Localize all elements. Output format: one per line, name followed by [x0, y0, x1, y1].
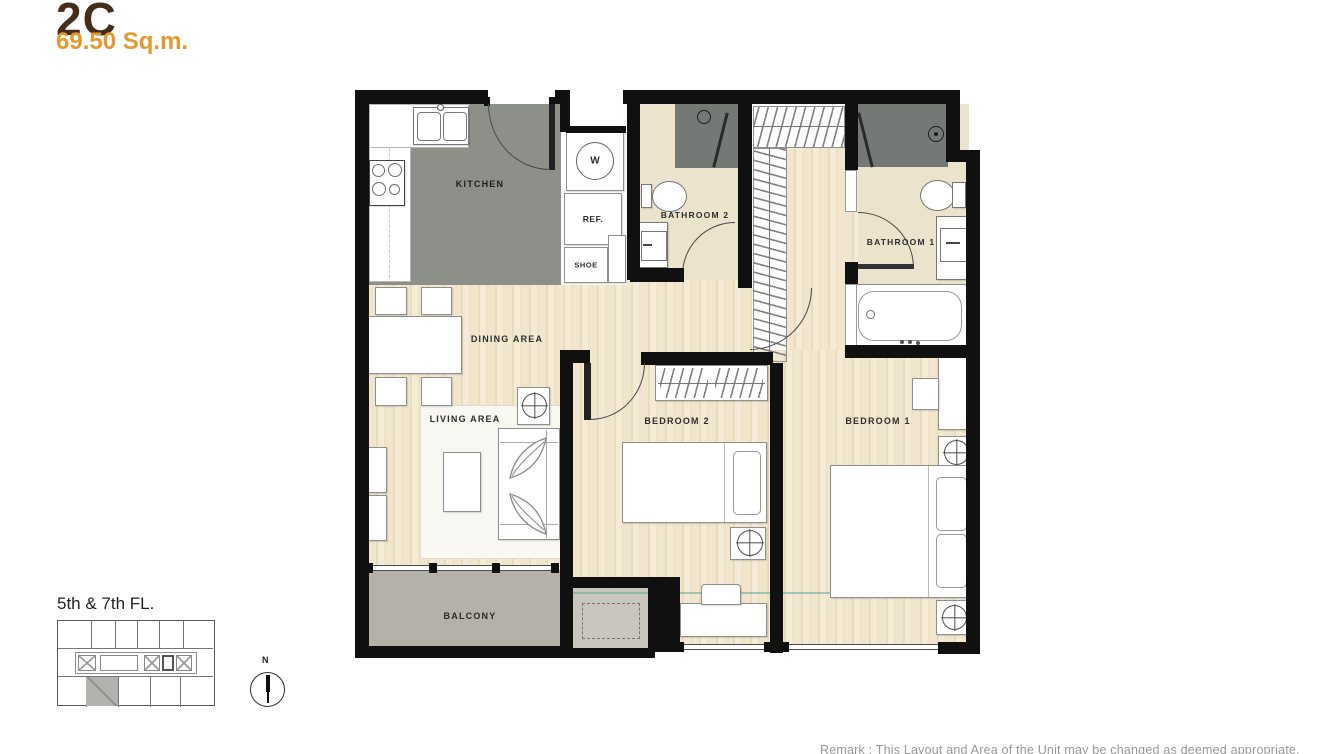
bathroom1-label: BATHROOM 1	[867, 237, 936, 247]
wall-ledge-top	[565, 577, 655, 588]
key-plan-grid-line	[58, 676, 213, 677]
exterior-notch	[570, 104, 623, 128]
compass-needle-tail	[267, 692, 269, 703]
wall-bathroom1-bedroom1	[845, 345, 980, 358]
leaf-pillow-top	[504, 436, 548, 482]
stool-bedroom1	[912, 378, 939, 410]
key-plan-core-box	[100, 655, 138, 671]
bathtub-drain	[866, 310, 875, 319]
plant-pot-living	[522, 393, 547, 418]
wall-right-main	[966, 150, 980, 652]
wall-bathroom1-left-upper	[845, 104, 858, 170]
floor-plan-page: 2C 69.50 Sq.m. W	[0, 0, 1342, 754]
dining-chair-2	[421, 287, 452, 315]
wall-bathroom1-left-stub	[845, 262, 858, 284]
desk-chair-bedroom2	[701, 584, 741, 605]
living-area-label: LIVING AREA	[430, 414, 501, 424]
leaf-pillow-bottom	[504, 490, 548, 536]
wall-bedroom2-top-main	[641, 352, 773, 365]
sliding-door-post-2	[429, 563, 437, 573]
toilet2-bowl	[652, 181, 687, 212]
coffee-table	[443, 452, 481, 512]
sink1-faucet	[946, 242, 960, 244]
sink2-faucet	[643, 244, 652, 246]
key-plan-elevator-3	[176, 655, 192, 671]
key-plan-elevator-1	[78, 655, 96, 671]
toilet1-tank	[952, 182, 966, 208]
balcony-floor	[369, 570, 560, 646]
showerhead1-dot	[934, 132, 938, 136]
wardrobe-rail	[658, 383, 765, 384]
floor-level-label: 5th & 7th FL.	[57, 594, 154, 614]
dining-chair-3	[375, 377, 407, 406]
dining-chair-1	[375, 287, 407, 315]
toilet1-bowl	[920, 180, 955, 211]
bathroom1-door-leaf	[858, 264, 914, 269]
key-plan-elevator-2	[144, 655, 160, 671]
shoe-label: SHOE	[574, 261, 597, 270]
sliding-door-post-3	[492, 563, 500, 573]
plant-pot-bedroom2	[737, 530, 763, 556]
wall-left	[355, 90, 369, 658]
bedroom2-window	[680, 644, 772, 650]
ac-condenser-unit	[582, 603, 640, 639]
closet-rack-top	[753, 106, 845, 148]
bed2-blanket-line	[724, 443, 725, 522]
showerhead2-icon	[697, 110, 711, 124]
toilet2-tank	[641, 184, 652, 208]
wall-ledge-bottom	[572, 648, 655, 658]
burner-1	[372, 164, 385, 177]
wall-bedroom2-top-stub	[560, 350, 590, 363]
burner-4	[389, 184, 400, 195]
sink-faucet	[437, 104, 444, 111]
key-plan-unit-highlight	[86, 677, 118, 706]
key-plan-grid-line	[137, 621, 138, 648]
compass-needle	[266, 675, 270, 692]
sink-basin-right	[443, 112, 467, 141]
tub-alcove-wall	[845, 284, 857, 346]
tv-console-bottom	[366, 495, 387, 541]
sink2-basin	[641, 231, 667, 261]
remark-text: Remark : This Layout and Area of the Uni…	[820, 743, 1340, 754]
key-plan-grid-line	[180, 676, 181, 707]
sink1-basin	[940, 228, 969, 262]
wall-balcony-bottom	[355, 646, 572, 658]
dining-chair-4	[421, 377, 452, 406]
burner-3	[372, 182, 386, 196]
bed2-pillow	[733, 451, 761, 515]
wall-bathroom2-bottom	[630, 268, 684, 282]
wall-bottom-right-corner	[938, 642, 980, 654]
bed1-pillow-top	[936, 477, 967, 531]
wall-utility-bathroom2	[627, 104, 640, 280]
key-plan-diagram	[57, 620, 215, 706]
sliding-door-post-4	[551, 563, 559, 573]
tv-console-top	[366, 447, 387, 493]
key-plan-grid-line	[118, 676, 119, 707]
balcony-sliding-door	[369, 565, 559, 571]
dining-table	[368, 316, 462, 374]
desk-bedroom2	[680, 603, 767, 637]
compass-north-label: N	[262, 655, 269, 665]
wall-bathroom2-closet	[738, 90, 752, 288]
plant-pot-bedroom1-bottom	[942, 605, 967, 630]
bathtub-faucet	[900, 340, 904, 344]
key-plan-grid-line	[115, 621, 116, 648]
bedroom2-label: BEDROOM 2	[644, 416, 709, 426]
wall-top-left	[355, 90, 488, 104]
bedroom1-label: BEDROOM 1	[845, 416, 910, 426]
bed1-pillow-bottom	[936, 534, 967, 588]
key-plan-grid-line	[159, 621, 160, 648]
dining-area-label: DINING AREA	[471, 334, 543, 344]
key-plan-grid-line	[150, 676, 151, 707]
tub-partition-wall	[845, 170, 857, 212]
key-plan-grid-line	[91, 621, 92, 648]
closet-rail-top	[753, 126, 845, 127]
key-plan-grid-line	[58, 648, 213, 649]
bed1-blanket-line	[928, 466, 929, 597]
kitchen-label: KITCHEN	[456, 179, 504, 189]
wall-living-bedroom2	[560, 363, 573, 658]
wall-ledge-right	[648, 577, 680, 652]
bathroom2-label: BATHROOM 2	[661, 210, 730, 220]
refrigerator-label: REF.	[583, 214, 603, 224]
key-plan-grid-line	[183, 621, 184, 648]
key-plan-stair-box	[162, 655, 174, 671]
balcony-label: BALCONY	[444, 611, 497, 621]
burner-2	[388, 163, 402, 177]
sink-basin-left	[417, 112, 441, 141]
wall-bedrooms-divider	[770, 363, 783, 653]
shoe-cabinet-side	[608, 235, 626, 283]
washer-label: W	[590, 156, 599, 167]
wall-utility-top	[566, 126, 626, 133]
wall-top-right	[623, 90, 960, 104]
